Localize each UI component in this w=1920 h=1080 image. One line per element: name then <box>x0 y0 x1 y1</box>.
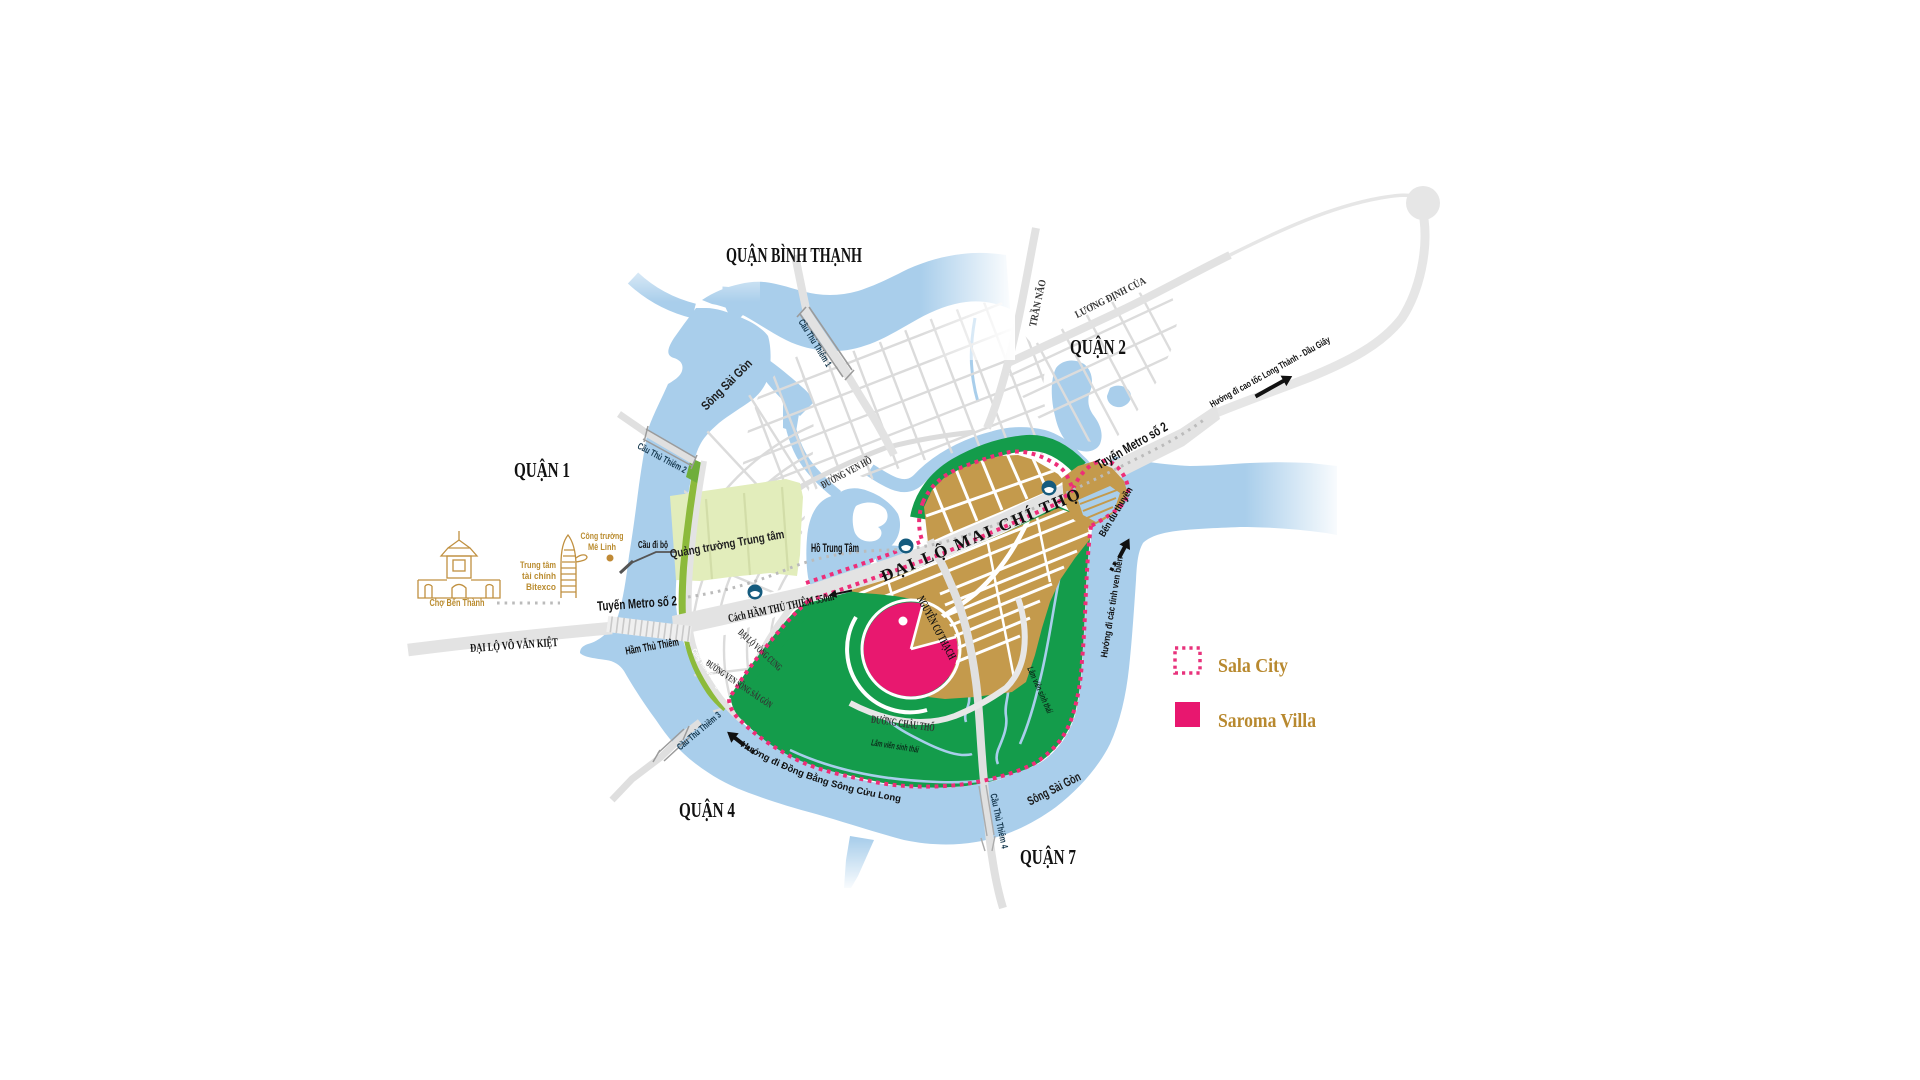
svg-text:Chợ Bến Thành: Chợ Bến Thành <box>430 597 485 609</box>
svg-text:QUẬN 2: QUẬN 2 <box>1070 335 1126 359</box>
svg-text:Cầu đi bộ: Cầu đi bộ <box>638 539 668 551</box>
svg-text:Saroma Villa: Saroma Villa <box>1218 710 1316 732</box>
svg-text:Mê Linh: Mê Linh <box>588 542 616 553</box>
svg-text:QUẬN 4: QUẬN 4 <box>679 798 735 822</box>
svg-text:QUẬN 1: QUẬN 1 <box>514 458 570 482</box>
svg-text:QUẬN BÌNH THẠNH: QUẬN BÌNH THẠNH <box>726 243 862 267</box>
svg-text:TRẦN NÃO: TRẦN NÃO <box>1026 278 1049 328</box>
svg-text:Sala City: Sala City <box>1218 655 1288 677</box>
svg-text:Bitexco: Bitexco <box>526 582 556 593</box>
svg-text:Hồ Trung Tâm: Hồ Trung Tâm <box>811 543 859 555</box>
svg-text:tài chính: tài chính <box>522 571 556 582</box>
svg-text:Công trường: Công trường <box>581 531 624 542</box>
svg-text:Trung tâm: Trung tâm <box>520 560 556 571</box>
svg-text:QUẬN 7: QUẬN 7 <box>1020 845 1076 869</box>
